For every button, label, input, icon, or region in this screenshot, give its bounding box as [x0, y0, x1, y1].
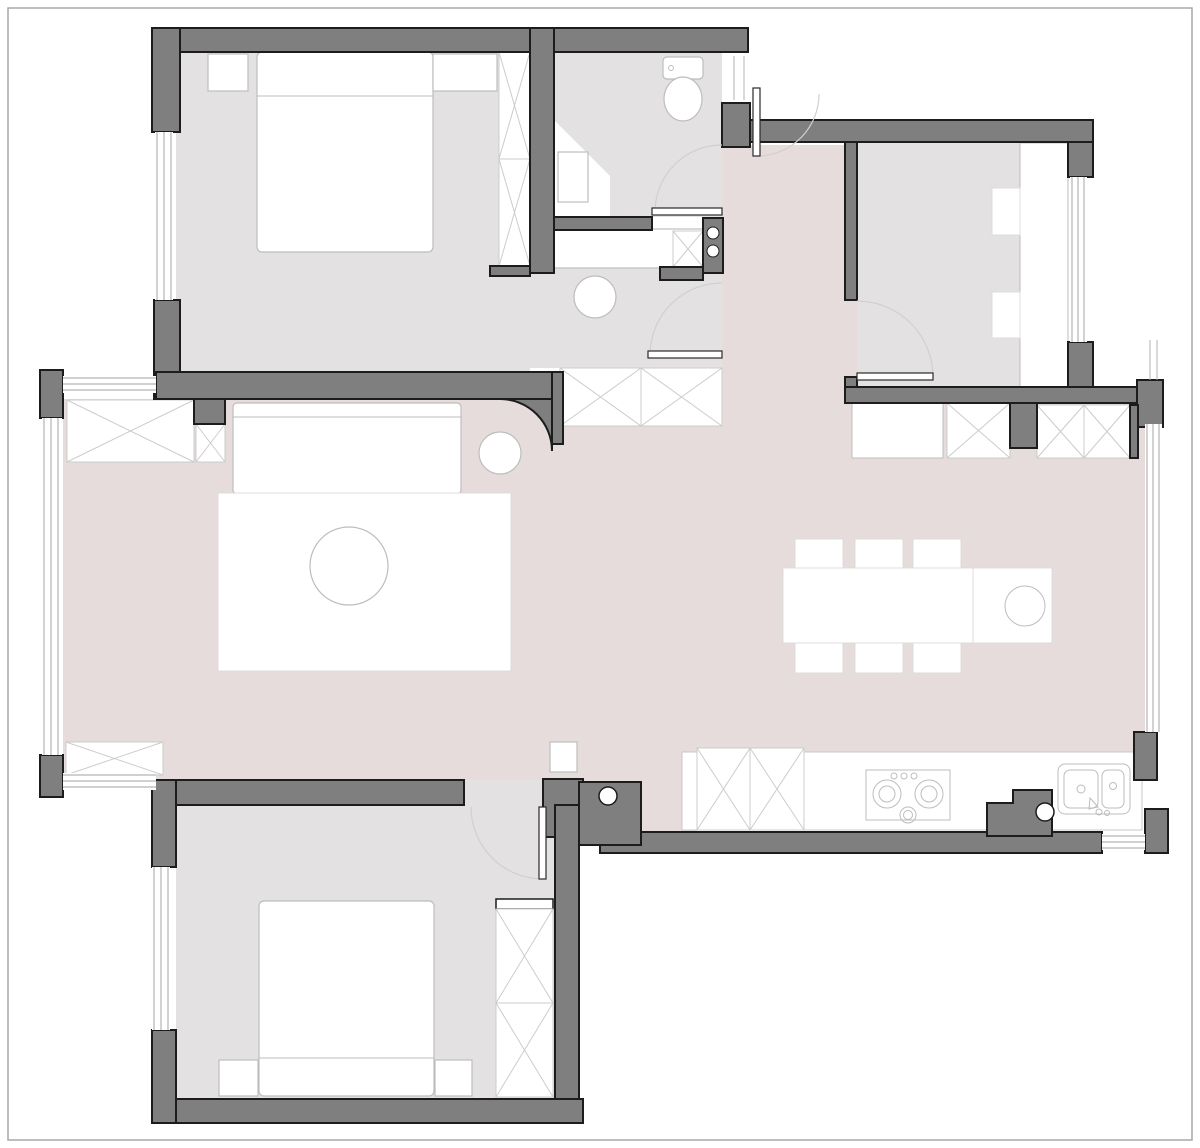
floor-study-room — [857, 142, 1020, 387]
wall — [194, 399, 225, 424]
wall-dot — [707, 245, 719, 257]
hallway-wardrobe — [641, 368, 722, 426]
wall — [40, 370, 63, 418]
dining-table — [783, 568, 973, 643]
nightstand — [219, 1060, 258, 1096]
sideboard — [66, 742, 163, 775]
wall — [722, 103, 750, 147]
door-leaf — [857, 373, 933, 380]
floor-plan-canvas — [0, 0, 1200, 1148]
wall — [660, 267, 703, 280]
wardrobe — [496, 1003, 553, 1097]
wardrobe — [499, 52, 530, 159]
desk-chair — [992, 188, 1020, 235]
wall — [1137, 380, 1163, 427]
washing-machine — [673, 231, 703, 267]
bathroom-shelf — [558, 152, 588, 202]
hall-wardrobe — [1037, 405, 1084, 458]
dining-chair — [913, 643, 961, 673]
wall — [152, 28, 748, 52]
dining-chair — [795, 539, 843, 568]
side-cabinet — [550, 742, 577, 772]
floor-plan — [0, 0, 1200, 1148]
door-leaf — [648, 351, 722, 358]
door-leaf — [539, 807, 546, 879]
wall — [152, 780, 464, 805]
door-leaf — [652, 208, 722, 215]
wall — [1130, 405, 1138, 458]
desk — [1020, 143, 1068, 387]
dining-island — [973, 568, 1052, 643]
nightstand — [435, 1060, 472, 1096]
wall — [152, 1030, 176, 1123]
kitchen-cabinet — [750, 748, 804, 830]
hall-cabinet — [852, 403, 943, 458]
wall — [490, 266, 530, 276]
door-leaf — [753, 88, 760, 156]
wardrobe — [499, 159, 530, 266]
hall-wardrobe — [947, 403, 1010, 458]
wall — [152, 780, 176, 867]
nightstand — [433, 54, 497, 91]
coffee-table — [310, 527, 388, 605]
side-table — [479, 432, 521, 474]
wall — [530, 28, 554, 273]
toilet-bowl — [664, 77, 702, 121]
wall-column-dot — [599, 787, 617, 805]
dining-chair — [913, 539, 961, 568]
bed — [257, 52, 433, 252]
window — [42, 418, 62, 755]
wall — [1145, 809, 1168, 853]
kitchen-cabinet — [697, 748, 750, 830]
wall — [845, 387, 1138, 403]
wall — [750, 120, 1093, 142]
sideboard — [67, 400, 194, 462]
wash-basin — [574, 276, 616, 318]
wall-dot — [707, 227, 719, 239]
wardrobe-shelf — [496, 899, 553, 909]
floor-bedroom-2-doorway — [464, 780, 543, 807]
wall — [555, 805, 579, 1123]
nightstand — [208, 54, 248, 91]
wall — [1068, 142, 1093, 177]
wall — [40, 755, 63, 797]
wall — [552, 372, 563, 444]
dining-chair — [795, 643, 843, 673]
wall — [156, 372, 552, 399]
wall — [1010, 403, 1037, 448]
wall-column-dot — [1036, 803, 1054, 821]
wall — [845, 142, 857, 300]
sideboard — [196, 424, 225, 462]
hallway-wardrobe — [560, 368, 641, 426]
dining-chair — [855, 643, 903, 673]
kitchen-sink — [1058, 764, 1130, 814]
hall-wardrobe — [1084, 405, 1130, 458]
dining-chair — [855, 539, 903, 568]
desk-chair — [992, 292, 1020, 338]
wall — [152, 28, 180, 132]
wall — [554, 217, 652, 230]
wall — [152, 1099, 583, 1123]
wall — [1134, 732, 1157, 780]
wardrobe — [496, 909, 553, 1003]
bed — [259, 901, 434, 1096]
floor-hallway — [722, 145, 857, 403]
